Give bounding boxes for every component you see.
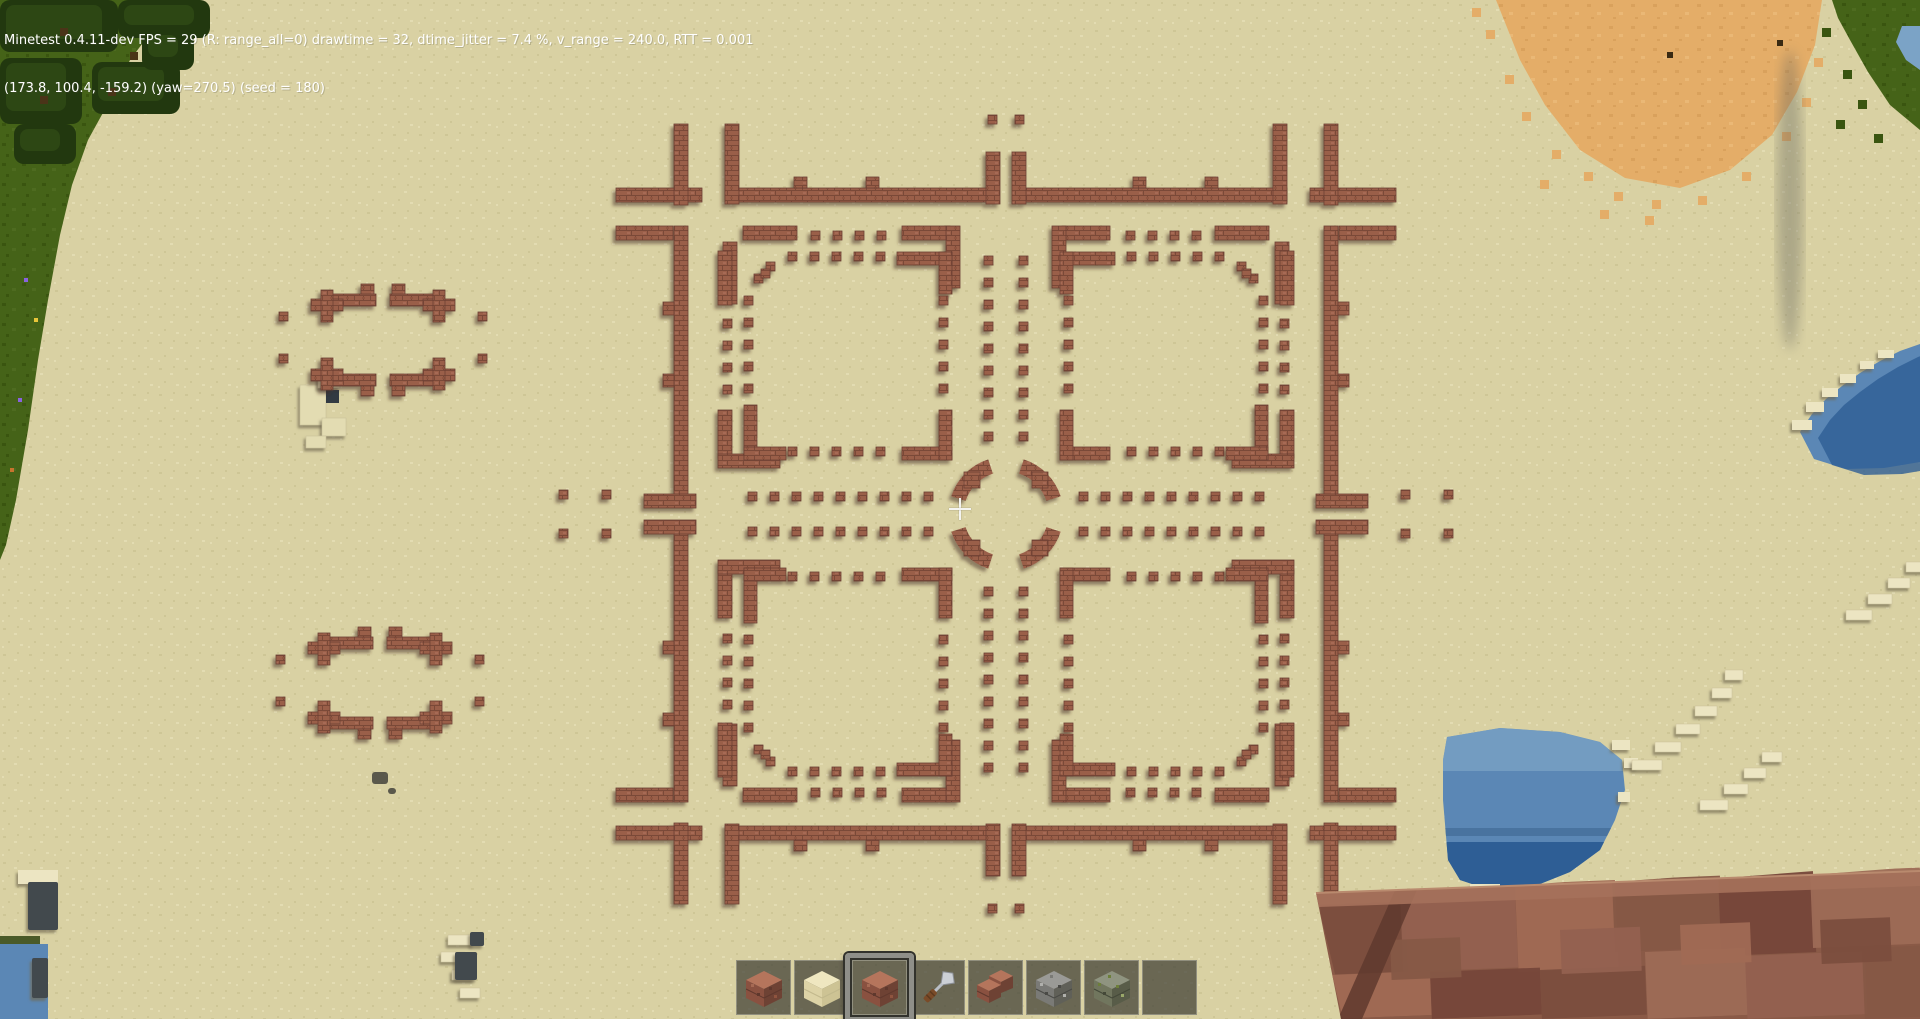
- smoke-plume: [1777, 50, 1803, 350]
- hotbar-selected-frame: [845, 953, 914, 1019]
- world-render: [0, 0, 1920, 1019]
- hotbar-slot-2[interactable]: [794, 960, 849, 1015]
- brick-stair-icon: [973, 965, 1019, 1011]
- cobblestone-block-icon: [1031, 965, 1077, 1011]
- hotbar: [736, 960, 1197, 1015]
- hotbar-slot-5[interactable]: [968, 960, 1023, 1015]
- debug-line-fps: Minetest 0.4.11-dev FPS = 29 (R: range_a…: [4, 33, 754, 49]
- hotbar-slot-6[interactable]: [1026, 960, 1081, 1015]
- roof-foreground: [1316, 868, 1920, 1019]
- terrain-layer: [0, 0, 1920, 1019]
- sandstone-block-icon: [799, 965, 845, 1011]
- hotbar-slot-1[interactable]: [736, 960, 791, 1015]
- empty-icon: [1147, 965, 1193, 1011]
- mossy-cobblestone-block-icon: [1089, 965, 1135, 1011]
- debug-line-position: (173.8, 100.4, -159.2) (yaw=270.5) (seed…: [4, 81, 754, 97]
- hotbar-slot-8[interactable]: [1142, 960, 1197, 1015]
- hotbar-slot-4[interactable]: [910, 960, 965, 1015]
- debug-overlay: Minetest 0.4.11-dev FPS = 29 (R: range_a…: [4, 1, 754, 129]
- brick-block-icon: [741, 965, 787, 1011]
- spade-tool-icon: [915, 965, 961, 1011]
- game-viewport: Minetest 0.4.11-dev FPS = 29 (R: range_a…: [0, 0, 1920, 1019]
- hotbar-slot-7[interactable]: [1084, 960, 1139, 1015]
